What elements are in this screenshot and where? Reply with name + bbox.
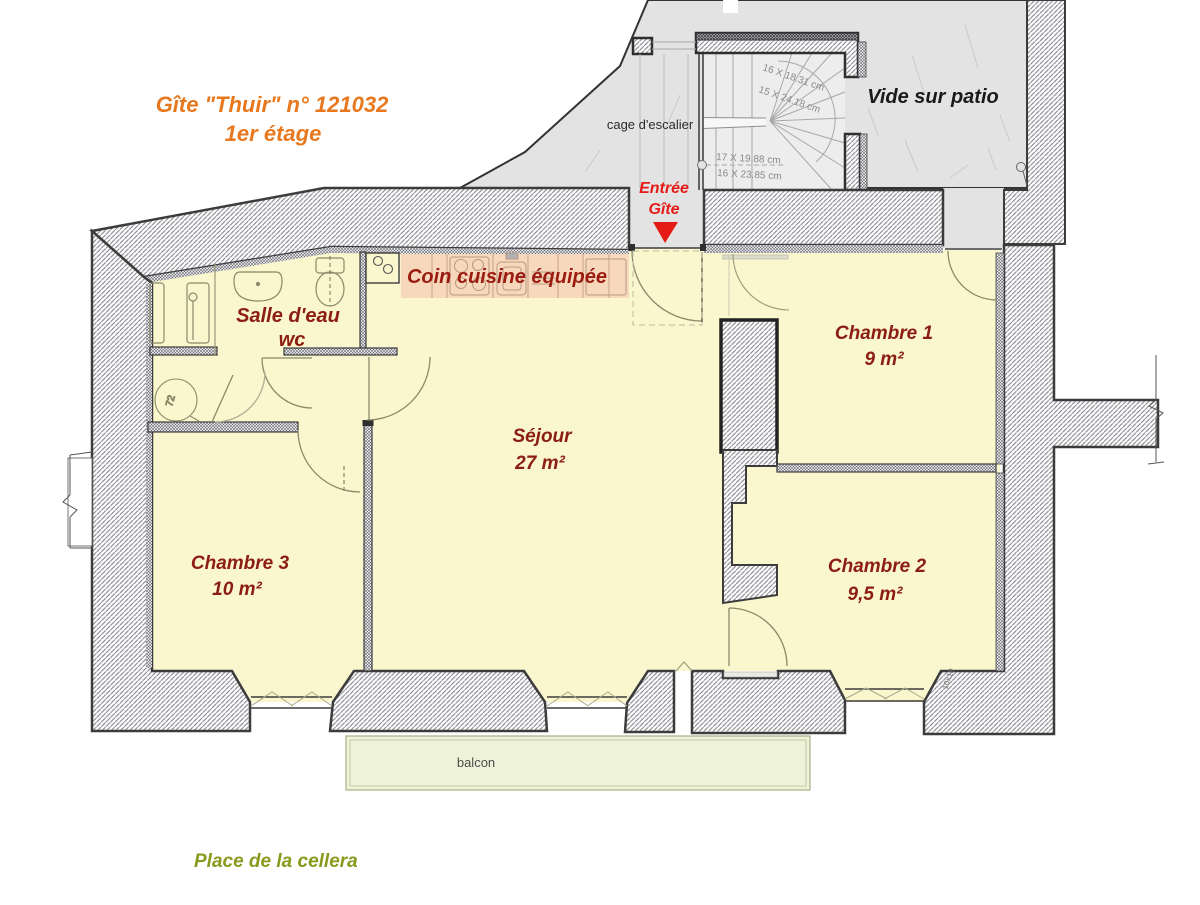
svg-text:10 m²: 10 m²	[212, 579, 262, 600]
svg-text:balcon: balcon	[457, 755, 495, 770]
svg-text:9,5 m²: 9,5 m²	[848, 584, 904, 605]
svg-text:Chambre 2: Chambre 2	[828, 556, 927, 577]
svg-text:Gîte "Thuir" n° 121032: Gîte "Thuir" n° 121032	[156, 92, 389, 117]
svg-text:Salle d'eau: Salle d'eau	[236, 305, 340, 327]
svg-text:Gîte: Gîte	[648, 201, 679, 218]
svg-text:wc: wc	[279, 329, 306, 351]
svg-text:Coin cuisine équipée: Coin cuisine équipée	[407, 266, 607, 288]
svg-text:1er étage: 1er étage	[225, 121, 322, 146]
svg-text:9 m²: 9 m²	[864, 349, 904, 370]
svg-text:cage d'escalier: cage d'escalier	[607, 117, 694, 132]
svg-text:Chambre 1: Chambre 1	[835, 323, 933, 344]
svg-text:Chambre 3: Chambre 3	[191, 553, 290, 574]
svg-text:27 m²: 27 m²	[514, 453, 565, 474]
svg-text:Entrée: Entrée	[639, 180, 689, 197]
svg-text:Place de la cellera: Place de la cellera	[194, 851, 358, 872]
svg-text:Vide sur patio: Vide sur patio	[867, 86, 999, 108]
svg-text:Séjour: Séjour	[512, 426, 573, 447]
